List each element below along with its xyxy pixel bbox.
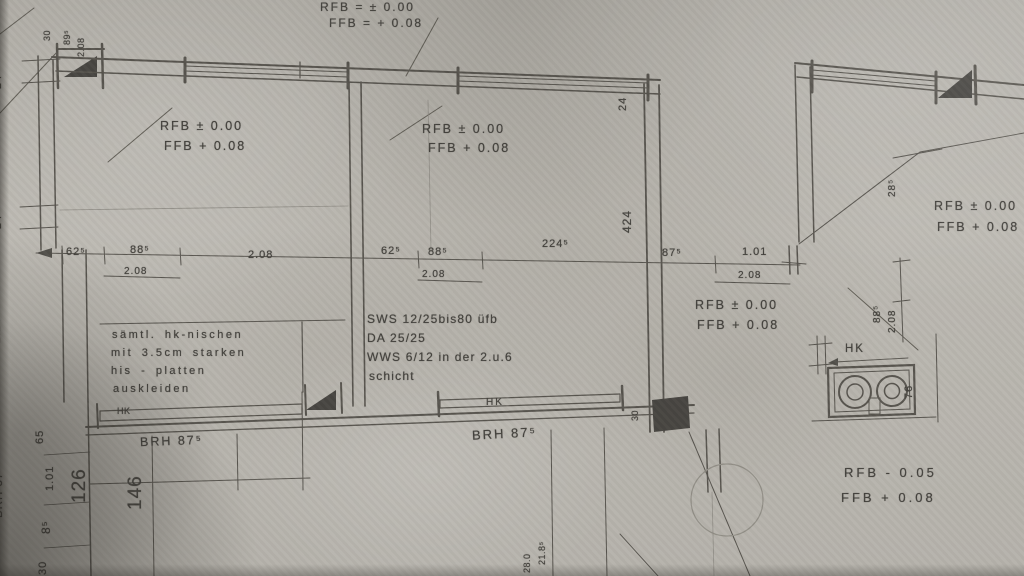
dim-wall-424: 424 <box>621 210 634 233</box>
sill-label-left-rotated: BRH 87⁵ <box>0 466 6 518</box>
dim-bl-126: 126 <box>70 468 90 503</box>
dim-topleft-89: 89⁵ <box>61 30 74 45</box>
right-room-dimension-lines <box>799 133 1024 342</box>
dim-bl-146: 146 <box>126 475 146 510</box>
hall-ffb: FFB + 0.08 <box>697 319 779 332</box>
dim-bm-30: 30 <box>629 410 642 421</box>
room-right-ffb: FFB + 0.08 <box>937 221 1019 234</box>
floor-plan-photo: RFB = ± 0.00 FFB = + 0.08 RFB ± 0.00 FFB… <box>0 0 1024 576</box>
room-middle-ffb: FFB + 0.08 <box>428 142 510 155</box>
note-hk-niche-line3: his - platten <box>111 365 206 378</box>
radiator-label-middle: HK <box>486 396 504 409</box>
room-middle-rfb: RFB ± 0.00 <box>422 123 505 136</box>
middle-partition-wall <box>349 82 365 406</box>
dim-left-180: 180 <box>0 142 1 163</box>
room-left-rfb: RFB ± 0.00 <box>160 120 243 133</box>
sill-label-left: BRH 87⁵ <box>140 434 203 449</box>
bottom-right-rfb: RFB - 0.05 <box>844 466 937 479</box>
note-hk-niche-line1: sämtl. hk-nischen <box>112 329 243 342</box>
dim-right-208: 2.08 <box>886 310 899 333</box>
dim-topleft-30: 30 <box>41 30 54 41</box>
note-hk-niche-line4: auskleiden <box>113 383 191 396</box>
hk-unit <box>809 334 938 422</box>
top-wall <box>52 57 660 100</box>
dim-rowA-208b: 2.08 <box>248 249 273 262</box>
sill-label-middle: BRH 87⁵ <box>472 425 538 441</box>
dim-rowA-208a: 2.08 <box>124 265 147 278</box>
dim-hall-87: 87⁵ <box>662 247 682 260</box>
header-elevation-ffb: FFB = + 0.08 <box>329 17 423 30</box>
right-room-top-wall <box>795 61 1024 104</box>
dim-rowB-88: 88⁵ <box>428 246 448 259</box>
dim-bl-8: 8⁵ <box>40 520 53 534</box>
bottom-wall <box>86 405 694 435</box>
bottom-wall-column <box>652 396 690 432</box>
dim-left-214: 2.14 <box>0 318 4 343</box>
dim-hall-208: 2.08 <box>738 269 761 282</box>
dim-bl-65: 65 <box>34 430 47 444</box>
construction-circle <box>691 464 763 536</box>
lower-right-lines <box>689 429 763 576</box>
dim-left-24b: 24 <box>0 215 5 229</box>
dim-hall-101: 1.01 <box>742 246 767 259</box>
dim-rowA-62: 62⁵ <box>66 246 86 259</box>
bottom-right-ffb: FFB + 0.08 <box>841 491 936 504</box>
note-construction-line1: SWS 12/25bis80 üfb <box>367 313 498 326</box>
dim-right-88: 88⁵ <box>871 305 884 323</box>
header-elevation-rfb: RFB = ± 0.00 <box>320 1 415 14</box>
dim-bl-101: 1.01 <box>44 466 57 491</box>
right-partition-wall <box>644 84 664 432</box>
hall-rfb: RFB ± 0.00 <box>695 299 778 312</box>
dim-rowB-62: 62⁵ <box>381 245 401 258</box>
dim-right-76: 76 <box>903 385 916 399</box>
bottom-door-triangle <box>305 383 342 415</box>
dim-topleft-208: 2.08 <box>75 37 88 57</box>
radiator-label-right: HK <box>845 343 865 356</box>
note-construction-line2: DA 25/25 <box>367 332 426 345</box>
lower-middle-lines <box>551 428 658 576</box>
note-construction-line4: schicht <box>369 370 415 383</box>
dim-left-24a: 24 <box>0 75 5 89</box>
note-construction-line3: WWS 6/12 in der 2.u.6 <box>367 351 513 364</box>
room-right-rfb: RFB ± 0.00 <box>934 200 1017 213</box>
radiator-label-left: HK <box>117 405 131 418</box>
dim-rowB-208: 2.08 <box>422 268 445 281</box>
dim-bl-30: 30 <box>37 561 50 575</box>
dimension-chain <box>36 246 806 284</box>
lower-left-wall <box>44 250 345 576</box>
dim-wall-24: 24 <box>617 97 630 111</box>
dim-bm-280: 28.0 <box>521 553 534 573</box>
dim-right-28: 28⁵ <box>886 179 899 197</box>
dim-bm-218: 21.8⁵ <box>536 541 549 565</box>
dim-rowB-224: 224⁵ <box>542 238 569 251</box>
note-hk-niche-line2: mit 3.5cm starken <box>111 347 246 360</box>
dim-rowA-88: 88⁵ <box>130 244 150 257</box>
room-left-ffb: FFB + 0.08 <box>164 140 246 153</box>
right-room-left-wall <box>795 65 814 242</box>
